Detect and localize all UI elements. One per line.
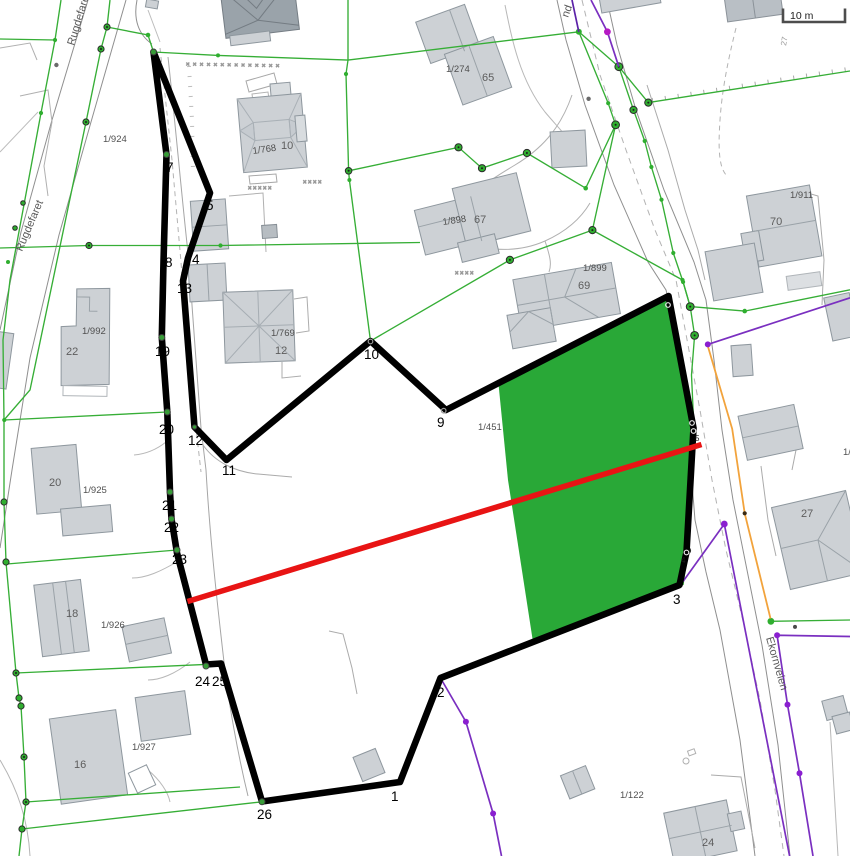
svg-text:70: 70 [770,216,782,228]
svg-text:1/451: 1/451 [478,422,502,433]
svg-text:18: 18 [66,608,78,620]
svg-text:65: 65 [482,72,494,84]
svg-text:1/: 1/ [843,447,850,458]
svg-text:××××: ×××× [303,180,323,186]
svg-text:21: 21 [162,498,177,513]
svg-text:10: 10 [364,347,379,362]
svg-text:1/927: 1/927 [132,742,156,753]
svg-text:12: 12 [188,433,203,448]
svg-text:4: 4 [192,252,200,267]
svg-text:22: 22 [66,346,78,358]
svg-text:1/926: 1/926 [101,620,125,631]
svg-text:1/274: 1/274 [446,64,470,75]
svg-text:×××××: ××××× [248,186,273,192]
svg-text:3: 3 [673,592,681,607]
svg-text:22: 22 [164,520,179,535]
svg-text:67: 67 [474,214,486,226]
svg-text:23: 23 [172,552,187,567]
svg-text:××××: ×××× [455,271,475,277]
svg-text:5: 5 [695,434,700,443]
svg-text:24: 24 [195,674,211,689]
svg-text:25: 25 [212,674,227,689]
svg-text:1/924: 1/924 [103,134,127,145]
svg-text:1/769: 1/769 [271,328,295,339]
svg-text:19: 19 [155,344,170,359]
svg-text:10 m: 10 m [790,10,814,22]
svg-text:1/992: 1/992 [82,326,106,337]
svg-text:12: 12 [275,345,287,357]
svg-text:16: 16 [74,759,86,771]
svg-text:9: 9 [437,415,445,430]
svg-text:20: 20 [49,477,61,489]
svg-text:7: 7 [166,160,174,175]
svg-text:4: 4 [681,556,686,565]
svg-text:69: 69 [578,280,590,292]
svg-text:20: 20 [159,422,174,437]
svg-text:10: 10 [281,140,293,152]
svg-text:1/122: 1/122 [620,790,644,801]
svg-text:1: 1 [391,789,399,804]
svg-text:2: 2 [437,685,445,700]
svg-text:5: 5 [206,198,214,213]
svg-text:24: 24 [702,837,714,849]
svg-text:8: 8 [165,255,173,270]
svg-text:13: 13 [177,281,192,296]
svg-text:1/925: 1/925 [83,485,107,496]
svg-text:11: 11 [222,463,236,478]
svg-text:26: 26 [257,807,272,822]
svg-text:27: 27 [801,508,813,520]
svg-text:1/911: 1/911 [790,190,813,201]
svg-text:1/899: 1/899 [583,263,607,274]
